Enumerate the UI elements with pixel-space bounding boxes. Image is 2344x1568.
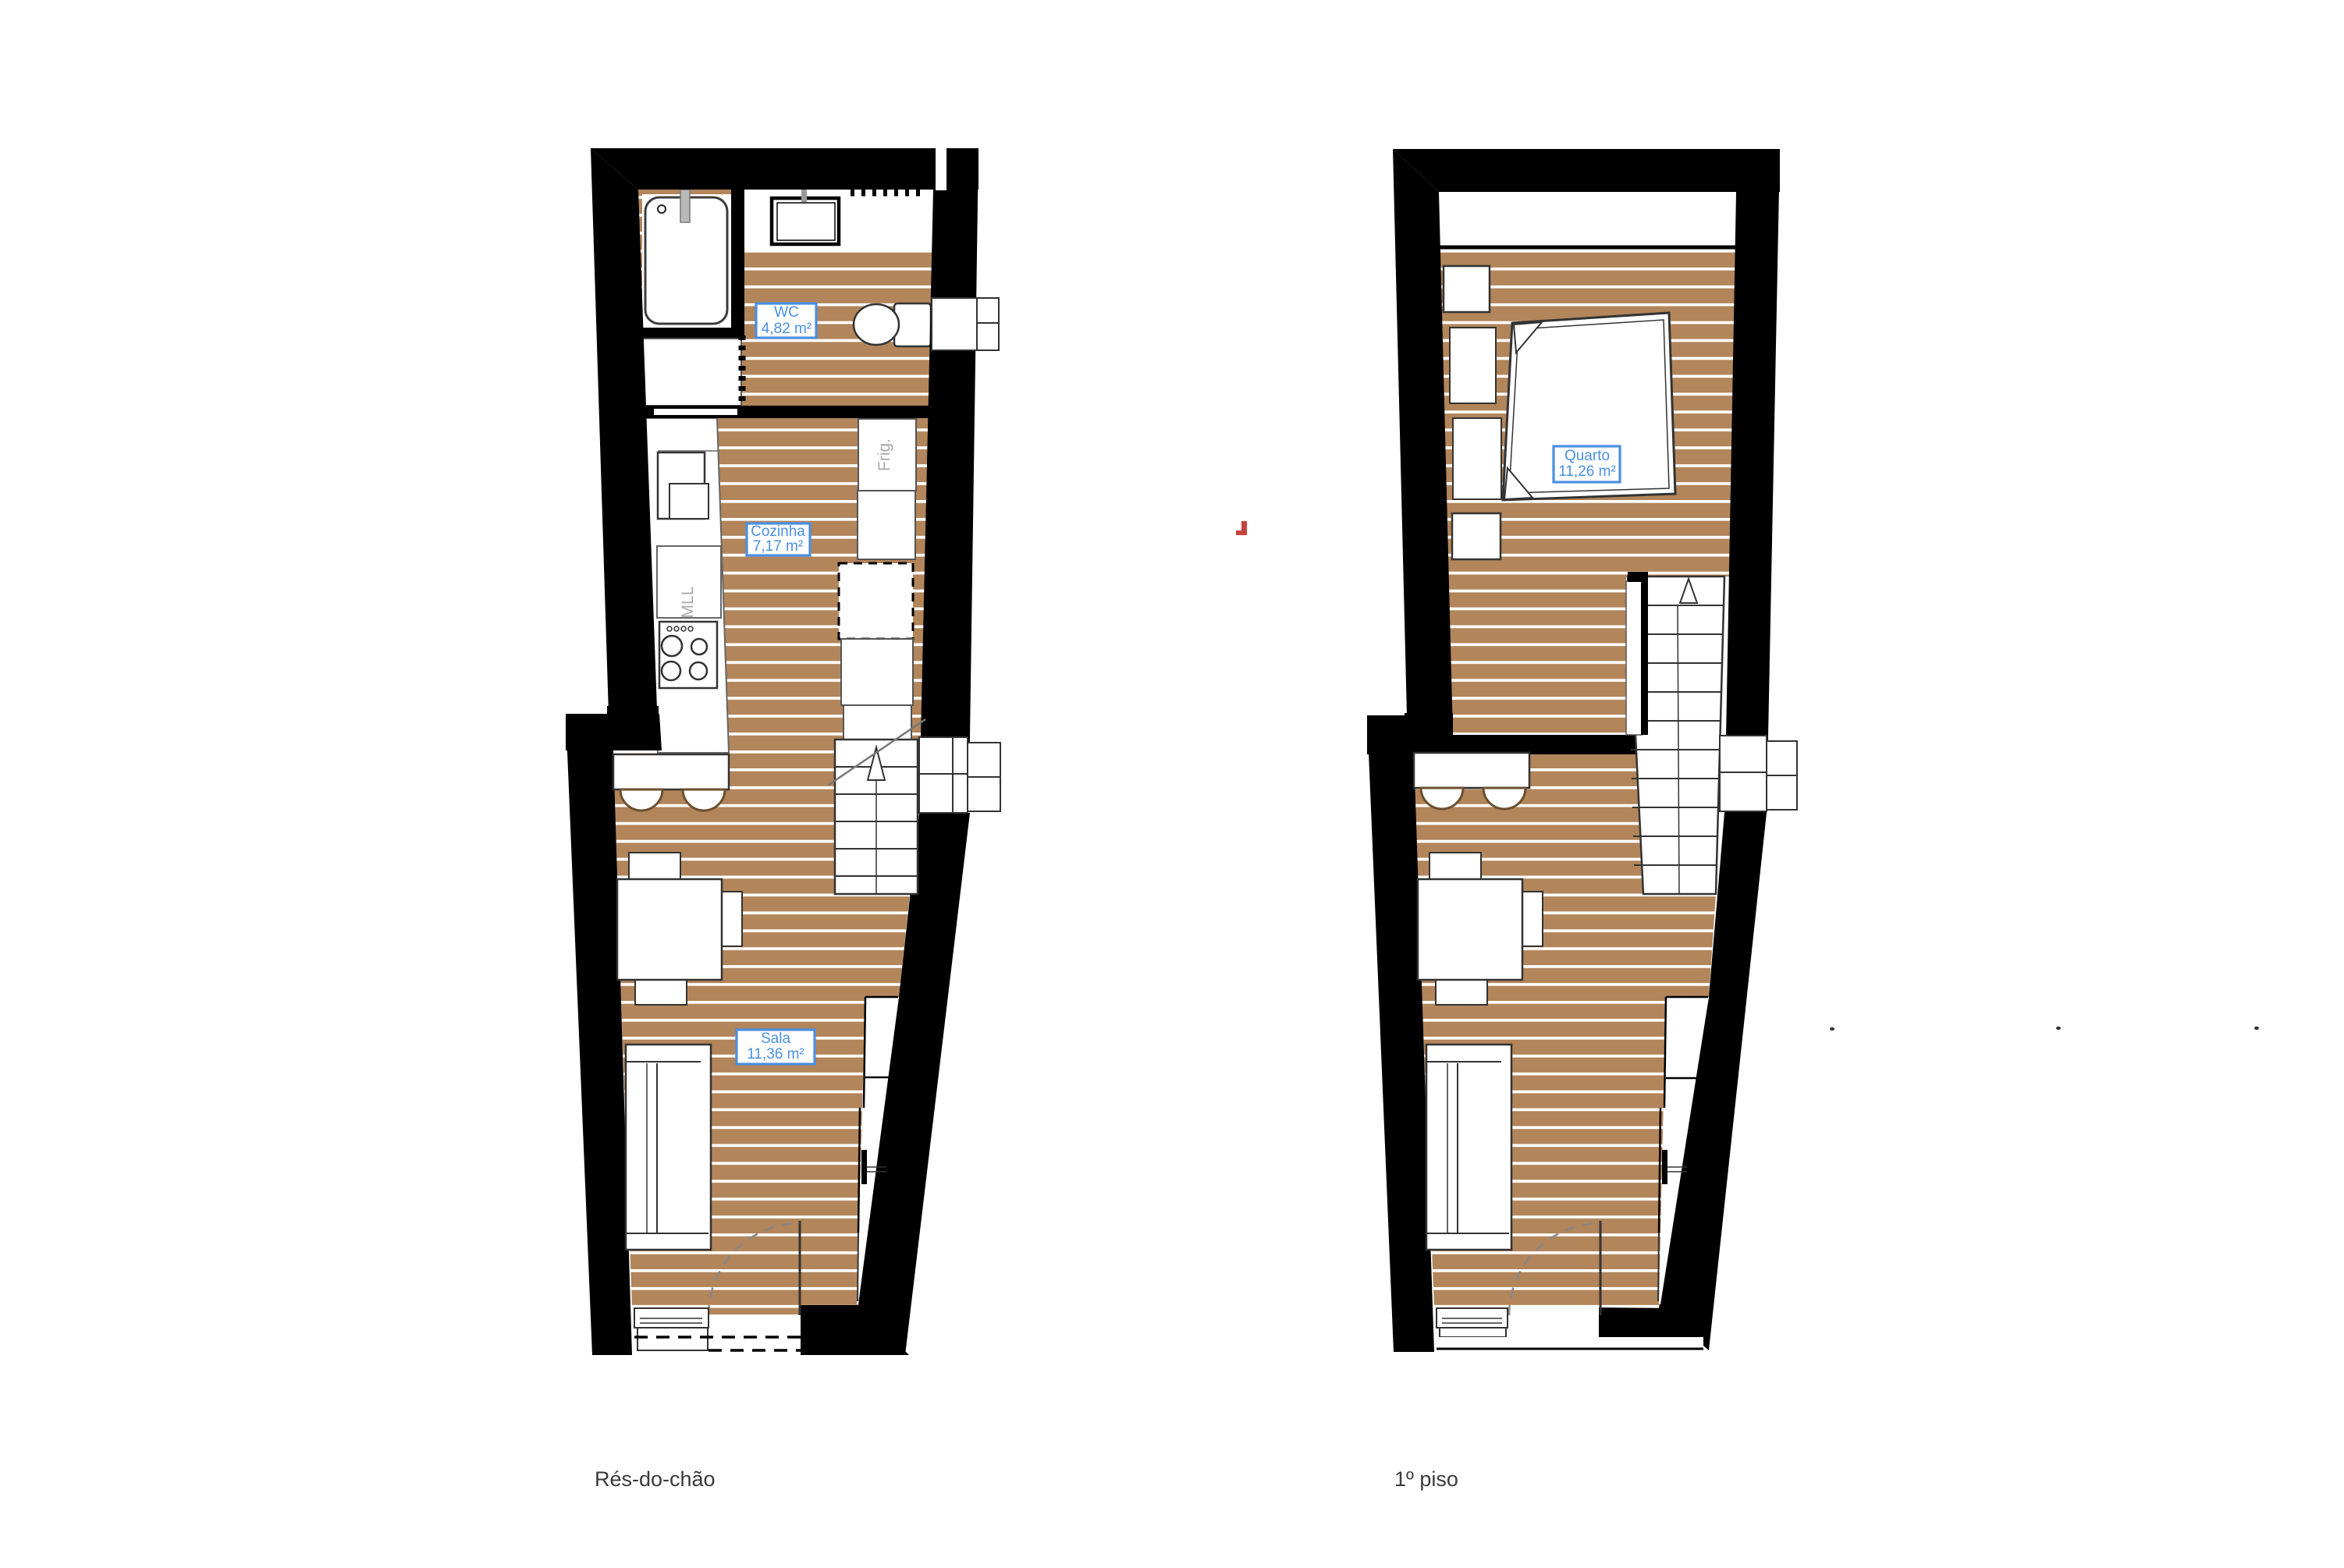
svg-text:4,82 m²: 4,82 m² — [762, 321, 812, 337]
svg-text:Quarto: Quarto — [1564, 448, 1610, 464]
svg-text:11,36 m²: 11,36 m² — [747, 1046, 804, 1062]
svg-text:Rés-do-chão: Rés-do-chão — [595, 1467, 716, 1491]
svg-text:1º piso: 1º piso — [1394, 1467, 1458, 1491]
svg-text:Frig.: Frig. — [875, 438, 893, 471]
svg-text:7,17 m²: 7,17 m² — [753, 538, 803, 555]
svg-text:Sala: Sala — [761, 1031, 790, 1047]
svg-text:WC: WC — [774, 304, 799, 321]
svg-text:Cozinha: Cozinha — [751, 523, 805, 540]
svg-text:11,26 m²: 11,26 m² — [1558, 463, 1616, 480]
svg-text:MLL: MLL — [679, 587, 697, 619]
